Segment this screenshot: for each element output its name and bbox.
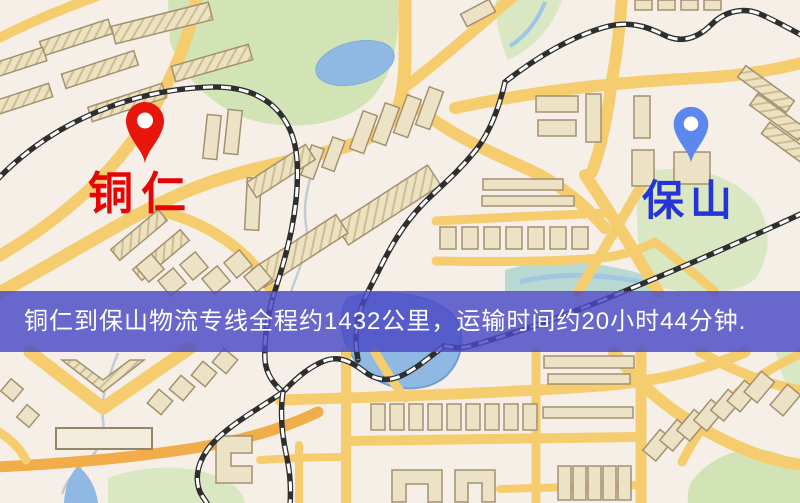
map-canvas — [0, 0, 800, 503]
info-banner: 铜仁到保山物流专线全程约1432公里，运输时间约20小时44分钟. — [0, 291, 800, 352]
destination-pin-icon[interactable] — [671, 106, 711, 168]
map-view[interactable]: 铜仁 保山 铜仁到保山物流专线全程约1432公里，运输时间约20小时44分钟. — [0, 0, 800, 503]
origin-pin-icon[interactable] — [125, 101, 165, 169]
origin-label: 铜仁 — [88, 172, 194, 217]
pin-shape — [126, 102, 164, 163]
pin-shape — [674, 107, 709, 163]
destination-label: 保山 — [642, 181, 738, 223]
banner-text: 铜仁到保山物流专线全程约1432公里，运输时间约20小时44分钟. — [24, 310, 746, 334]
